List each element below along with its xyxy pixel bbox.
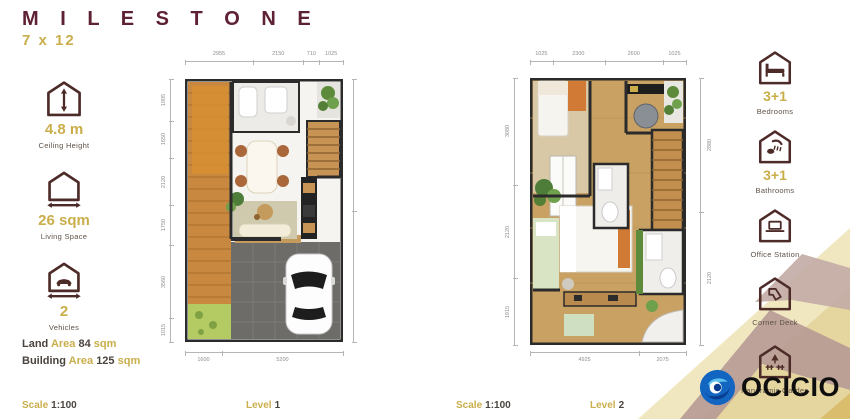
dim-top-level2: 1025 2300 2600 1025: [530, 61, 686, 62]
bedrooms-icon: [757, 50, 793, 86]
building-area-value: 125: [96, 355, 114, 367]
amenity-column: 3+1 Bedrooms 3+1 Bathrooms Office Statio…: [721, 50, 829, 408]
spec-living-space: 26 sqm Living Space: [10, 171, 118, 241]
dim-label: 2120: [707, 272, 713, 284]
land-area-value: 84: [78, 338, 90, 350]
level-value: 2: [619, 400, 625, 411]
spec-value: 2: [10, 303, 118, 320]
dim-label: 1650: [161, 133, 167, 145]
dim-label: 1905: [161, 94, 167, 106]
plan-size: 7 x 12: [22, 32, 76, 49]
building-area-word: Area: [69, 355, 93, 367]
scale-level2: Scale1:100: [456, 400, 511, 411]
spec-vehicles: 2 Vehicles: [10, 262, 118, 332]
amenity-label: Bathrooms: [721, 186, 829, 195]
dim-label: 710: [307, 51, 316, 57]
dim-label: 1750: [161, 219, 167, 231]
dim-label: 1915: [505, 306, 511, 318]
living-space-icon: [45, 171, 83, 209]
land-area-word: Area: [51, 338, 75, 350]
spec-value: 26 sqm: [10, 212, 118, 229]
amenity-office-station: Office Station: [721, 208, 829, 259]
area-summary: Land Area 84 sqm Building Area 125 sqm: [22, 336, 140, 370]
amenity-value: 3+1: [721, 167, 829, 183]
dim-label: 5200: [276, 357, 288, 363]
level-word: Level: [590, 400, 616, 411]
dim-label: 2600: [628, 51, 640, 57]
amenity-label: Corner Deck: [721, 318, 829, 327]
dim-label: 2300: [572, 51, 584, 57]
ocicio-logo-icon: [699, 369, 736, 406]
dim-label: 1025: [325, 51, 337, 57]
amenity-label: Office Station: [721, 250, 829, 259]
corner-deck-icon: [757, 276, 793, 312]
car: [283, 254, 335, 334]
scale-value: 1:100: [485, 400, 511, 411]
land-area-line: Land Area 84 sqm: [22, 336, 140, 353]
dim-label: 1025: [535, 51, 547, 57]
spec-label: Vehicles: [10, 323, 118, 332]
dim-bottom-level1: 1600 5200: [185, 352, 343, 353]
dim-label: 3080: [505, 125, 511, 137]
dim-label: 4925: [578, 357, 590, 363]
brand-logo: OCICIO: [699, 369, 840, 406]
dim-label: 1015: [161, 324, 167, 336]
scale-word: Scale: [456, 400, 482, 411]
dim-top-level1: 2955 2150 710 1025: [185, 61, 343, 62]
dim-label: 2120: [505, 225, 511, 237]
page-title: M I L E S T O N E: [22, 8, 319, 31]
amenity-value: 3+1: [721, 88, 829, 104]
spec-ceiling-height: 4.8 m Ceiling Height: [10, 80, 118, 150]
dim-label: 2880: [707, 139, 713, 151]
dim-label: 2120: [161, 175, 167, 187]
spec-column: 4.8 m Ceiling Height 26 sqm Living Space…: [10, 80, 118, 353]
level2-label: Level2: [590, 400, 624, 411]
spec-value: 4.8 m: [10, 121, 118, 138]
ceiling-height-icon: [45, 80, 83, 118]
amenity-corner-deck: Corner Deck: [721, 276, 829, 327]
land-area-unit: sqm: [94, 338, 117, 350]
dim-left-level2: 3080 2120 1915: [514, 78, 515, 345]
dim-bottom-level2: 4925 2075: [530, 352, 686, 353]
amenity-label: Bedrooms: [721, 107, 829, 116]
building-area-unit: sqm: [118, 355, 141, 367]
dim-label: 2075: [656, 357, 668, 363]
dim-right-level1: [353, 79, 354, 342]
dim-right-level2: 2880 2120: [700, 78, 701, 345]
level1-label: Level1: [246, 400, 280, 411]
office-station-icon: [757, 208, 793, 244]
brand-logo-text: OCICIO: [741, 372, 840, 403]
floor-plan-level-1: [185, 79, 343, 342]
bathrooms-icon: [757, 129, 793, 165]
dim-label: 1025: [668, 51, 680, 57]
dim-label: 1600: [197, 357, 209, 363]
dim-left-level1: 1905 1650 2120 1750 3560 1015: [170, 79, 171, 342]
building-label: Building: [22, 355, 66, 367]
spec-label: Ceiling Height: [10, 141, 118, 150]
amenity-bathrooms: 3+1 Bathrooms: [721, 129, 829, 195]
land-label: Land: [22, 338, 48, 350]
level-value: 1: [275, 400, 281, 411]
amenity-bedrooms: 3+1 Bedrooms: [721, 50, 829, 116]
scale-word: Scale: [22, 400, 48, 411]
scale-value: 1:100: [51, 400, 77, 411]
dim-label: 3560: [161, 275, 167, 287]
dim-label: 2955: [213, 51, 225, 57]
level-word: Level: [246, 400, 272, 411]
floor-plan-level-2: [530, 78, 686, 345]
scale-level1: Scale1:100: [22, 400, 77, 411]
building-area-line: Building Area 125 sqm: [22, 353, 140, 370]
spec-label: Living Space: [10, 232, 118, 241]
vehicles-icon: [45, 262, 83, 300]
dim-label: 2150: [272, 51, 284, 57]
